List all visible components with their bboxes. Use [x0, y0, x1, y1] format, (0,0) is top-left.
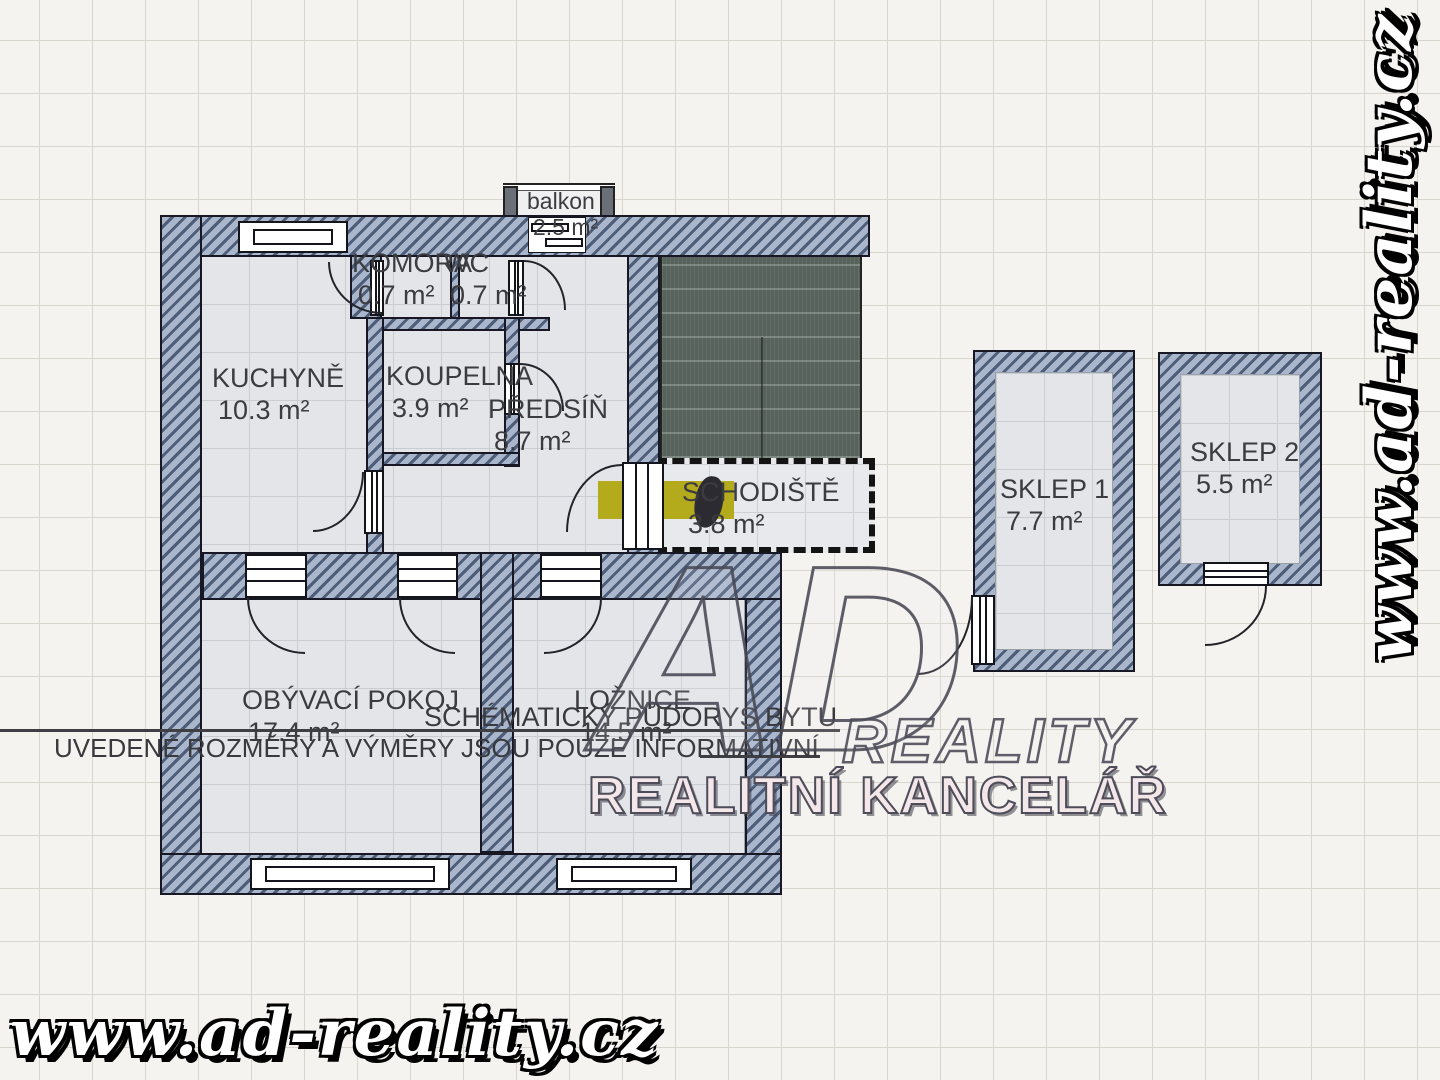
agency-logo-tagline: REALITNÍ KANCELÁŘ [588, 766, 1168, 826]
room-name: SKLEP 1 [1000, 474, 1109, 504]
living-room-door-frame-2 [397, 554, 458, 598]
room-name: PŘEDSÍŇ [488, 394, 608, 424]
stair-divider-line [761, 337, 763, 458]
wall-left [160, 215, 202, 895]
room-name: WC [444, 248, 489, 278]
room-label-predsin: PŘEDSÍŇ 8.7 m² [488, 393, 608, 458]
room-name: KUCHYNĚ [212, 363, 344, 393]
bedroom-window [556, 858, 692, 890]
room-name: SCHODIŠTĚ [682, 477, 840, 507]
cellar2-door-frame [1203, 562, 1269, 586]
room-label-sklep1: SKLEP 1 7.7 m² [1000, 473, 1109, 538]
room-area: 10.3 m² [218, 394, 344, 426]
room-label-balkon: balkon 2.5 m² [527, 188, 598, 241]
room-label-sklep2: SKLEP 2 5.5 m² [1190, 436, 1299, 501]
room-area: 0.7 m² [450, 279, 527, 311]
living-room-window [250, 858, 450, 890]
website-watermark-bottom: www.ad-reality.cz [10, 996, 659, 1071]
stairwell-zone [660, 255, 862, 460]
kitchen-door-frame [364, 470, 384, 534]
room-area: 8.7 m² [494, 425, 608, 457]
room-label-wc: WC 0.7 m² [444, 247, 527, 312]
kitchen-window [238, 221, 348, 253]
cellar1-door-frame [971, 595, 995, 665]
wall-closet-wc-bottom [382, 317, 550, 331]
room-label-kuchyne: KUCHYNĚ 10.3 m² [212, 362, 344, 427]
room-area: 2.5 m² [533, 214, 598, 240]
cellar2-door-arc [1205, 586, 1267, 646]
room-area: 5.5 m² [1196, 468, 1299, 500]
room-name: balkon [527, 188, 595, 214]
room-name: SKLEP 2 [1190, 437, 1299, 467]
living-room-door-frame-1 [245, 554, 307, 598]
room-name: KOUPELNA [386, 361, 533, 391]
website-watermark-right: www.ad-reality.cz [1352, 13, 1427, 662]
floor-plan-canvas: balkon 2.5 m² KOMORA 0.7 m² WC 0.7 m² KU… [0, 0, 1440, 1080]
room-area: 7.7 m² [1006, 505, 1109, 537]
